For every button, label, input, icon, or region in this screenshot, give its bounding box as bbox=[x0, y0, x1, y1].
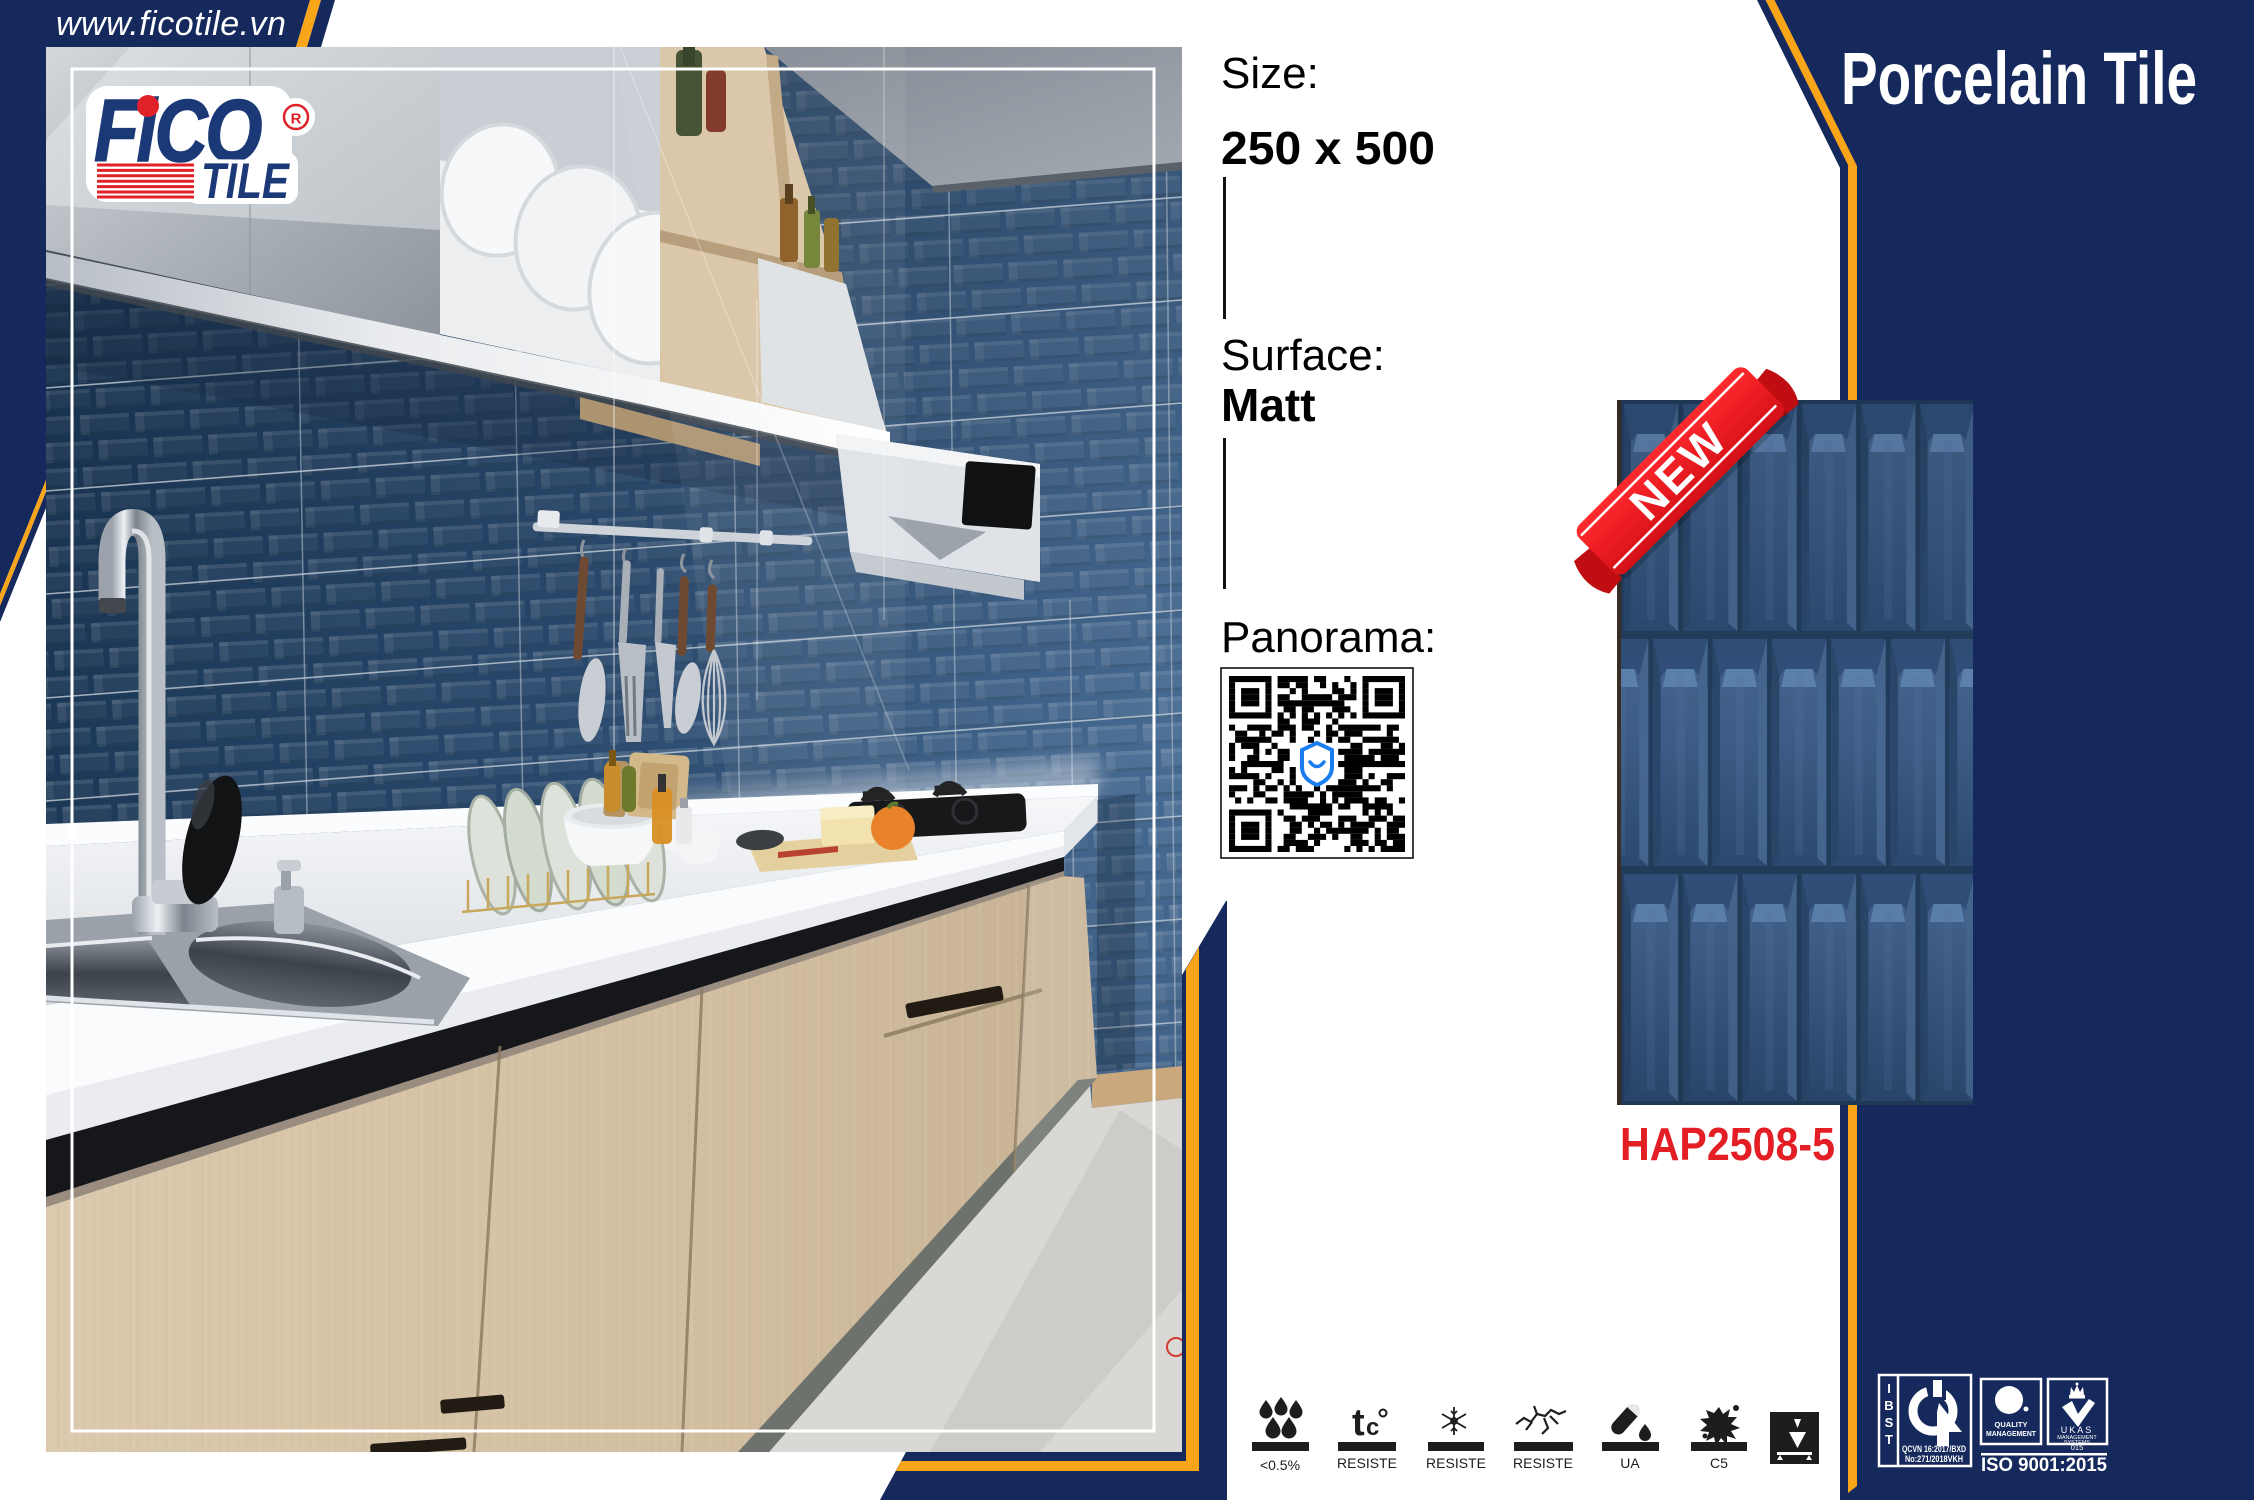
svg-text:TILE: TILE bbox=[201, 153, 290, 209]
svg-text:I: I bbox=[1887, 1381, 1891, 1396]
svg-text:Size:: Size: bbox=[1221, 49, 1319, 98]
svg-text:QUALITY: QUALITY bbox=[1995, 1420, 2028, 1429]
svg-text:Porcelain Tile: Porcelain Tile bbox=[1841, 37, 2197, 120]
svg-text:S: S bbox=[1885, 1415, 1894, 1430]
svg-text:015: 015 bbox=[2071, 1443, 2084, 1452]
svg-text:UKAS: UKAS bbox=[2061, 1425, 2094, 1435]
svg-text:Panorama:: Panorama: bbox=[1221, 613, 1436, 662]
svg-text:www.ficotile.vn: www.ficotile.vn bbox=[56, 5, 286, 43]
svg-text:<0.5%: <0.5% bbox=[1260, 1457, 1300, 1473]
svg-text:RESISTE: RESISTE bbox=[1426, 1455, 1486, 1471]
svg-text:RESISTE: RESISTE bbox=[1513, 1455, 1573, 1471]
svg-text:C5: C5 bbox=[1710, 1455, 1728, 1471]
svg-text:T: T bbox=[1885, 1432, 1893, 1447]
svg-text:ISO 9001:2015: ISO 9001:2015 bbox=[1981, 1455, 2107, 1476]
svg-text:UA: UA bbox=[1620, 1455, 1640, 1471]
svg-text:No:271/2018VKH: No:271/2018VKH bbox=[1905, 1454, 1963, 1464]
svg-text:B: B bbox=[1884, 1398, 1893, 1413]
svg-text:c: c bbox=[1366, 1414, 1379, 1441]
svg-text:Matt: Matt bbox=[1221, 379, 1316, 431]
svg-text:QCVN 16:2017/BXD: QCVN 16:2017/BXD bbox=[1902, 1444, 1966, 1454]
svg-text:MANAGEMENT: MANAGEMENT bbox=[1986, 1429, 2036, 1438]
svg-text:Surface:: Surface: bbox=[1221, 331, 1385, 380]
svg-text:250 x 500: 250 x 500 bbox=[1221, 122, 1435, 174]
svg-text:RESISTE: RESISTE bbox=[1337, 1455, 1397, 1471]
svg-text:R: R bbox=[291, 111, 302, 128]
svg-text:HAP2508-5: HAP2508-5 bbox=[1620, 1118, 1835, 1170]
svg-text:t: t bbox=[1352, 1402, 1365, 1444]
